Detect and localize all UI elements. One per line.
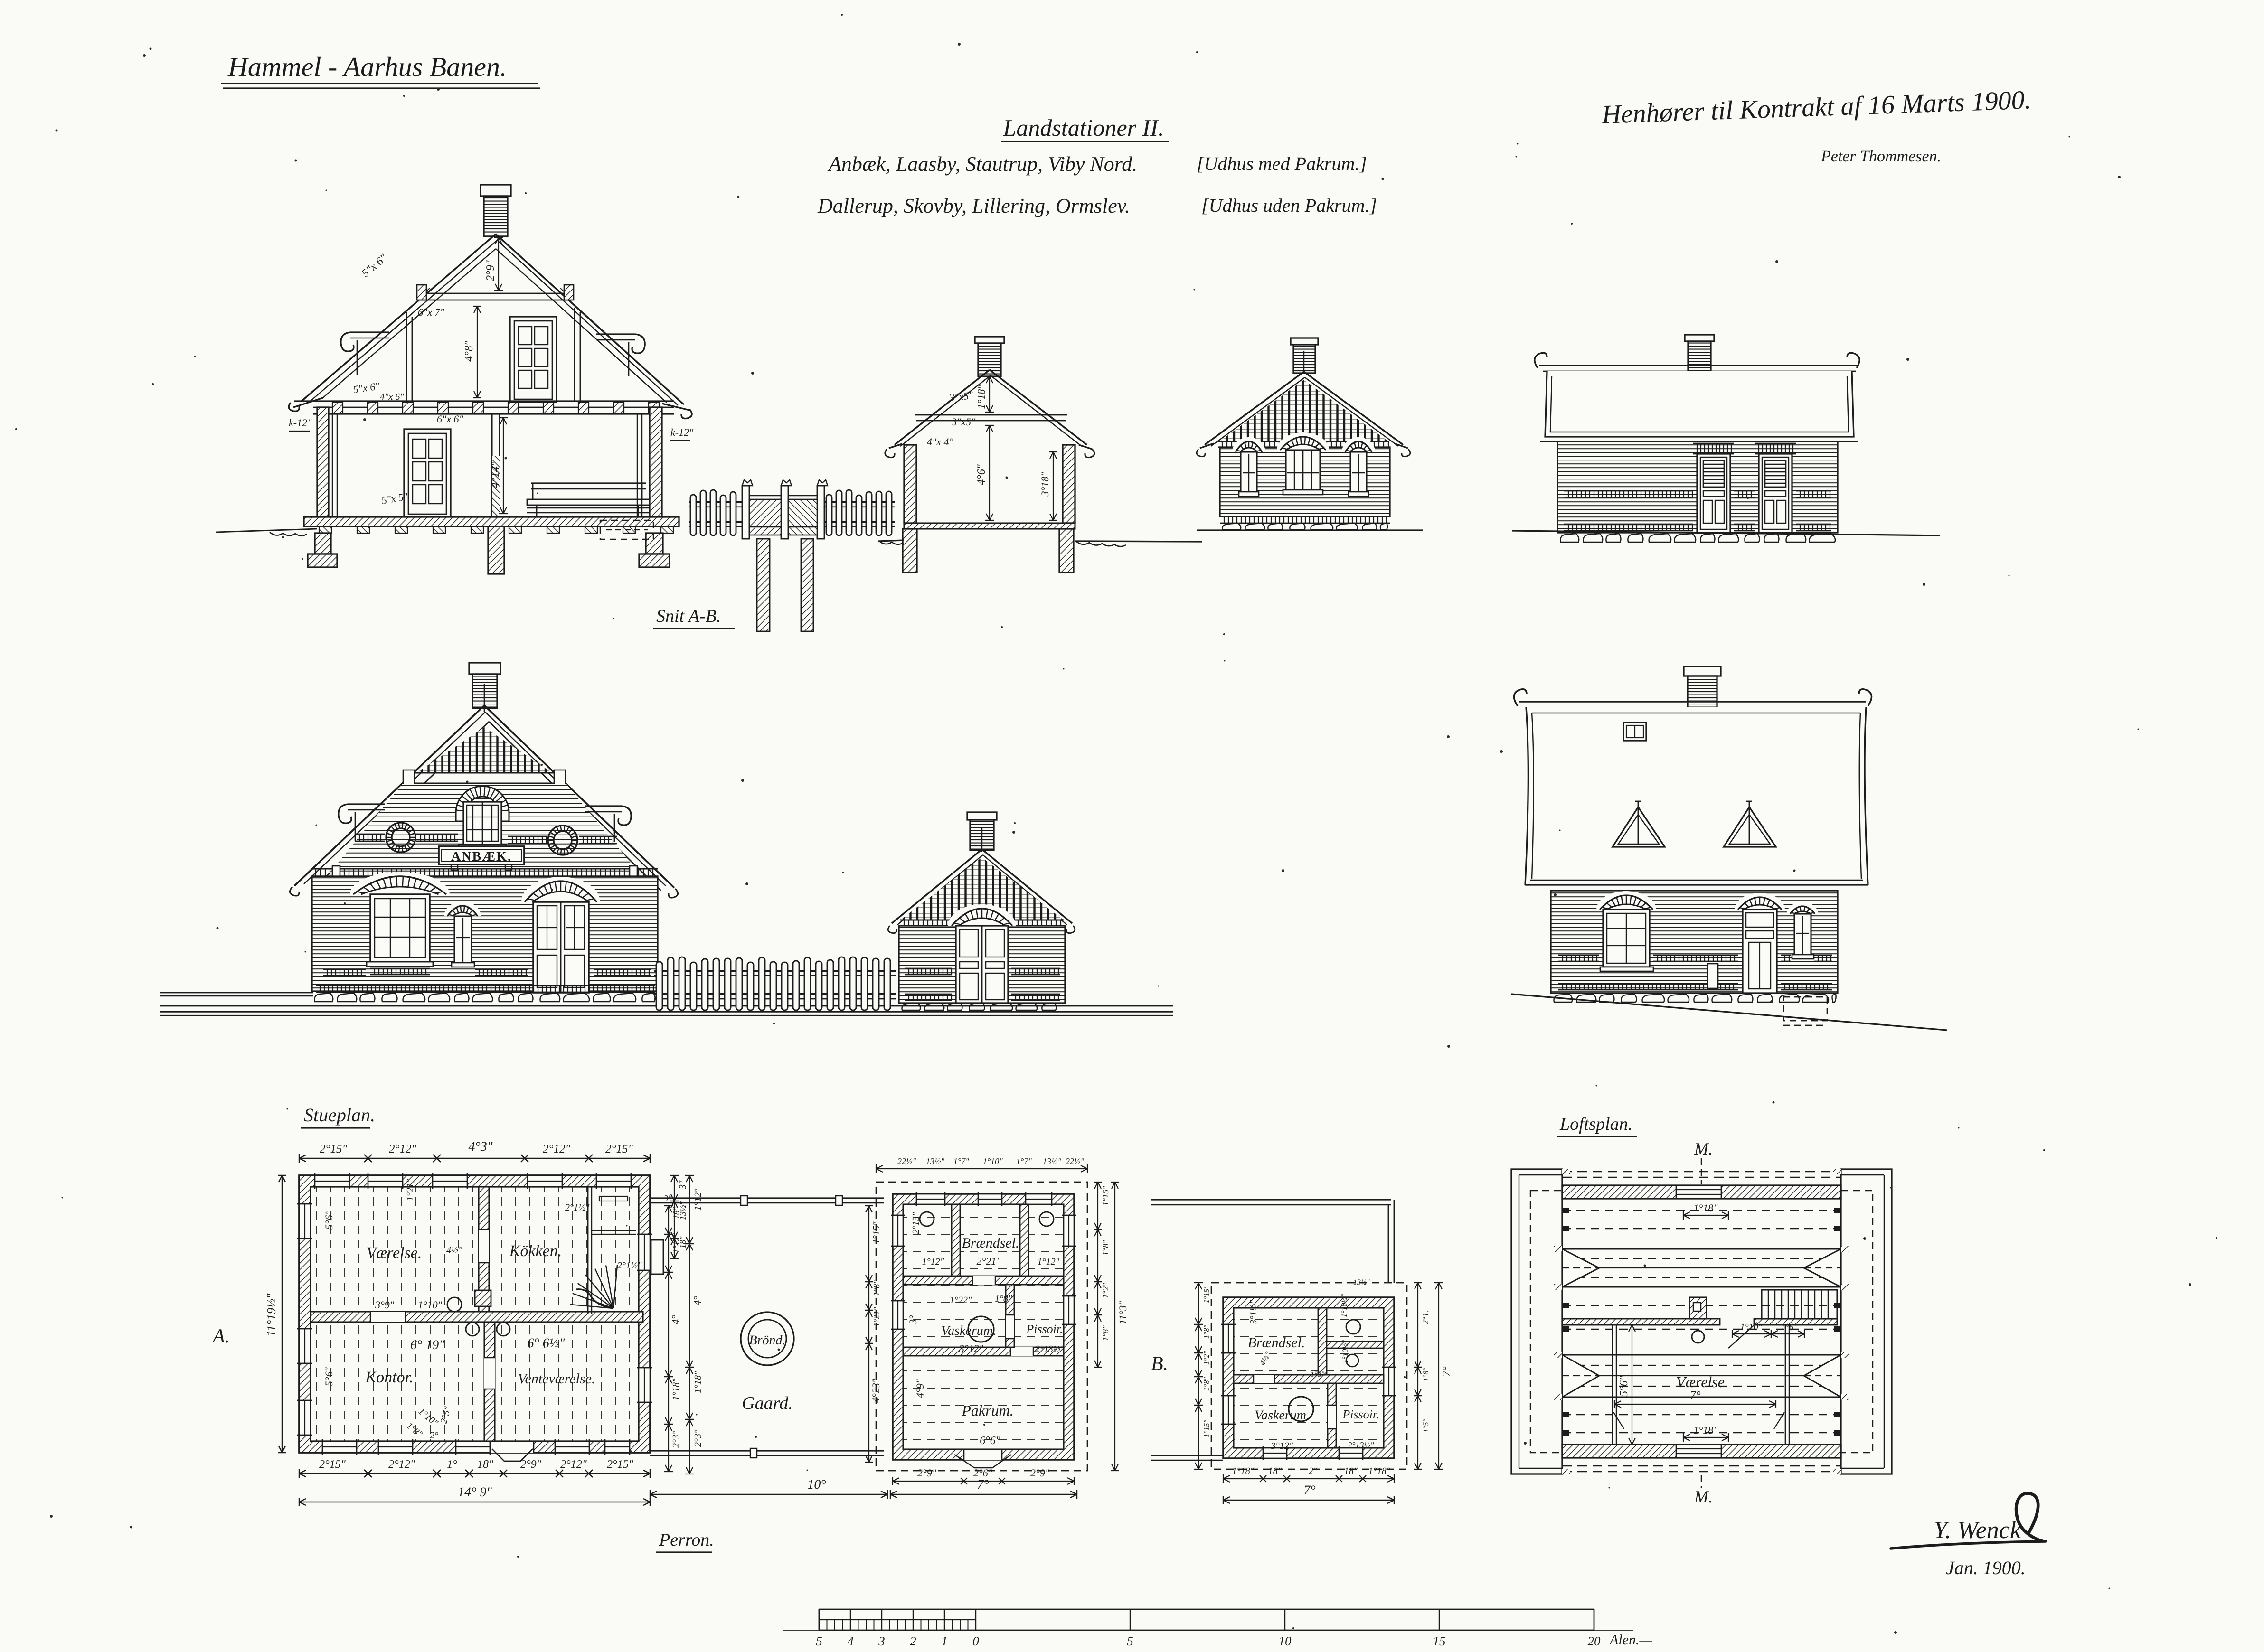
svg-text:14° 9": 14° 9" [458, 1485, 492, 1500]
svg-text:4°8": 4°8" [463, 340, 475, 362]
svg-text:[Udhus uden Pakrum.]: [Udhus uden Pakrum.] [1201, 195, 1377, 216]
svg-text:2°: 2° [430, 1430, 438, 1441]
svg-text:2°12": 2°12" [543, 1143, 570, 1155]
svg-text:1°2": 1°2" [1203, 1351, 1211, 1365]
svg-text:1°5": 1°5" [1422, 1419, 1430, 1433]
svg-text:2°9": 2°9" [917, 1467, 937, 1479]
svg-text:Brændsel.: Brændsel. [1248, 1335, 1305, 1351]
svg-text:1°6": 1°6" [1781, 1322, 1798, 1333]
svg-text:5°6": 5°6" [323, 1210, 335, 1230]
svg-text:1°: 1° [447, 1458, 457, 1471]
svg-text:7°: 7° [1689, 1389, 1700, 1402]
svg-text:1°8": 1°8" [1203, 1377, 1211, 1391]
svg-text:1°8": 1°8" [1101, 1325, 1110, 1341]
svg-text:1: 1 [941, 1634, 948, 1648]
svg-text:2°15": 2°15" [320, 1143, 347, 1155]
svg-text:M.: M. [1694, 1139, 1713, 1158]
svg-text:Værelse.: Værelse. [1676, 1373, 1728, 1390]
svg-text:1°10½": 1°10½" [1340, 1294, 1349, 1317]
svg-text:2°1½": 2°1½" [565, 1202, 590, 1213]
svg-text:7°: 7° [977, 1477, 989, 1492]
svg-text:1°22": 1°22" [950, 1295, 972, 1305]
svg-text:Værelse.: Værelse. [367, 1244, 422, 1262]
svg-text:3"x5": 3"x5" [951, 416, 976, 428]
svg-text:7°: 7° [1303, 1483, 1315, 1498]
svg-text:1°2": 1°2" [1101, 1283, 1110, 1298]
svg-text:3°9": 3°9" [375, 1299, 395, 1311]
svg-text:2°15": 2°15" [319, 1458, 346, 1471]
svg-text:4°14": 4°14" [489, 461, 501, 488]
svg-text:13½": 13½" [1043, 1156, 1062, 1166]
svg-text:4: 4 [847, 1634, 854, 1648]
svg-text:5: 5 [1127, 1634, 1133, 1648]
svg-text:2°9": 2°9" [520, 1458, 542, 1471]
svg-text:4°6": 4°6" [975, 464, 988, 485]
svg-text:1°18": 1°18" [1693, 1424, 1718, 1436]
svg-text:2°21": 2°21" [976, 1255, 1001, 1267]
svg-text:Brændsel.: Brændsel. [962, 1235, 1019, 1251]
svg-text:Alen.—: Alen.— [1609, 1632, 1652, 1648]
svg-text:Landstationer II.: Landstationer II. [1003, 114, 1164, 141]
svg-text:18": 18" [1268, 1466, 1282, 1476]
svg-text:4½": 4½" [446, 1245, 462, 1256]
svg-text:10°: 10° [807, 1477, 826, 1492]
svg-text:15: 15 [1433, 1634, 1446, 1648]
svg-text:6°6": 6°6" [980, 1435, 1001, 1447]
svg-text:1°8": 1°8" [1203, 1325, 1211, 1339]
svg-text:3°12": 3°12" [1271, 1441, 1293, 1451]
svg-text:Loftsplan.: Loftsplan. [1559, 1114, 1632, 1134]
svg-text:11°3": 11°3" [1117, 1301, 1129, 1324]
svg-text:A.: A. [211, 1325, 230, 1347]
svg-text:3°12": 3°12" [959, 1342, 984, 1354]
svg-text:3°1½": 3°1½" [1248, 1300, 1259, 1325]
svg-text:2°15": 2°15" [605, 1143, 633, 1155]
svg-text:11°19½": 11°19½" [264, 1293, 278, 1336]
svg-text:1°10": 1°10" [983, 1156, 1003, 1166]
svg-text:22½": 22½" [897, 1156, 916, 1166]
svg-text:1°15": 1°15" [1101, 1186, 1110, 1206]
svg-text:1°8": 1°8" [995, 1294, 1012, 1304]
svg-text:18": 18" [671, 1207, 681, 1219]
svg-text:k-12": k-12" [289, 417, 312, 429]
svg-text:3": 3" [663, 1193, 672, 1203]
svg-text:1°12": 1°12" [1038, 1257, 1060, 1267]
svg-text:Kökken.: Kökken. [509, 1242, 562, 1260]
svg-text:Peter Thommesen.: Peter Thommesen. [1821, 148, 1941, 165]
svg-text:Vaskerum.: Vaskerum. [1255, 1408, 1310, 1423]
svg-text:4°9": 4°9" [914, 1379, 926, 1398]
svg-text:Pakrum.: Pakrum. [961, 1402, 1013, 1419]
svg-text:1°12": 1°12" [671, 1233, 681, 1253]
svg-text:Vaskerum.: Vaskerum. [941, 1323, 996, 1338]
svg-text:1°10½": 1°10½" [1341, 1340, 1349, 1363]
svg-text:Kontor.: Kontor. [365, 1369, 413, 1386]
svg-text:13½": 13½" [1353, 1278, 1370, 1286]
svg-text:1°8": 1°8" [1422, 1368, 1430, 1381]
svg-text:1°12": 1°12" [693, 1188, 703, 1211]
svg-text:B.: B. [1151, 1353, 1168, 1375]
svg-text:2°9": 2°9" [1030, 1467, 1050, 1479]
svg-text:Snit A-B.: Snit A-B. [656, 606, 721, 626]
svg-text:18": 18" [1344, 1466, 1358, 1476]
svg-text:3°18": 3°18" [1039, 472, 1051, 497]
svg-text:6° 6½": 6° 6½" [528, 1336, 565, 1351]
svg-text:6"x 6": 6"x 6" [437, 413, 464, 425]
svg-text:1°8": 1°8" [1101, 1240, 1110, 1256]
svg-text:1°18": 1°18" [671, 1378, 681, 1400]
svg-text:Jan. 1900.: Jan. 1900. [1946, 1557, 2026, 1578]
svg-text:4°3": 4°3" [469, 1139, 493, 1154]
svg-text:6° 19": 6° 19" [410, 1338, 444, 1352]
svg-text:4°: 4° [691, 1296, 703, 1305]
svg-text:1°18": 1°18" [1693, 1202, 1718, 1214]
svg-text:2°12": 2°12" [388, 1458, 415, 1471]
svg-text:2°13½": 2°13½" [1035, 1344, 1065, 1354]
svg-text:Anbæk, Laasby, Stautrup, Viby: Anbæk, Laasby, Stautrup, Viby Nord. [827, 152, 1137, 176]
svg-text:2°15": 2°15" [607, 1458, 634, 1471]
svg-text:Dallerup, Skovby, Lillering, O: Dallerup, Skovby, Lillering, Ormslev. [817, 194, 1130, 217]
svg-text:k-12": k-12" [670, 426, 694, 438]
svg-text:[Udhus med Pakrum.]: [Udhus med Pakrum.] [1197, 153, 1367, 174]
svg-text:2°1½": 2°1½" [617, 1260, 642, 1271]
svg-text:20: 20 [1588, 1634, 1601, 1648]
svg-text:3: 3 [878, 1634, 885, 1648]
svg-text:1°21": 1°21" [405, 1179, 415, 1201]
svg-text:2: 2 [910, 1634, 916, 1648]
svg-text:1°18": 1°18" [693, 1371, 703, 1393]
svg-text:2°15": 2°15" [911, 1212, 921, 1234]
svg-text:4"x 6": 4"x 6" [380, 392, 404, 402]
svg-text:1°8": 1°8" [1311, 1370, 1324, 1379]
svg-text:2°13½": 2°13½" [1348, 1440, 1374, 1450]
svg-text:4"x 4": 4"x 4" [927, 436, 954, 448]
svg-text:Brönd.: Brönd. [749, 1333, 786, 1348]
svg-text:5°6": 5°6" [1618, 1375, 1630, 1397]
svg-text:2": 2" [1309, 1466, 1318, 1476]
svg-text:1°15": 1°15" [1203, 1420, 1211, 1437]
svg-text:1°10": 1°10" [418, 1299, 443, 1311]
svg-text:2°3": 2°3" [671, 1430, 681, 1448]
svg-text:1°18": 1°18" [975, 385, 987, 409]
svg-text:5: 5 [816, 1634, 822, 1648]
svg-text:2°3": 2°3" [693, 1429, 703, 1447]
svg-text:0: 0 [972, 1634, 979, 1648]
svg-text:Gaard.: Gaard. [742, 1393, 792, 1413]
svg-text:Pissoir.: Pissoir. [1342, 1408, 1379, 1421]
svg-text:22½": 22½" [1066, 1156, 1085, 1166]
svg-text:Pissoir.: Pissoir. [1026, 1322, 1063, 1336]
svg-text:1°18": 1°18" [1368, 1466, 1391, 1476]
svg-text:1°7": 1°7" [953, 1156, 969, 1166]
svg-text:10: 10 [1279, 1634, 1292, 1648]
svg-text:5°6": 5°6" [323, 1367, 335, 1386]
svg-text:ANBÆK.: ANBÆK. [451, 849, 512, 864]
svg-text:Hammel - Aarhus Banen.: Hammel - Aarhus Banen. [227, 51, 507, 82]
svg-text:4°: 4° [670, 1315, 681, 1324]
svg-text:1°15": 1°15" [1203, 1286, 1211, 1303]
svg-text:18": 18" [477, 1458, 494, 1471]
svg-text:3°: 3° [907, 1315, 919, 1325]
svg-text:2°12": 2°12" [560, 1458, 587, 1471]
svg-text:1°7": 1°7" [1016, 1156, 1032, 1166]
svg-text:Stueplan.: Stueplan. [304, 1104, 375, 1126]
svg-text:6"x 7": 6"x 7" [418, 306, 445, 318]
svg-text:1°10": 1°10" [1740, 1322, 1763, 1333]
svg-text:2°12": 2°12" [389, 1143, 416, 1155]
svg-text:1°18": 1°18" [1232, 1466, 1255, 1476]
svg-text:2°9": 2°9" [484, 260, 497, 281]
svg-text:7°: 7° [1441, 1366, 1453, 1377]
svg-text:M.: M. [1694, 1487, 1713, 1506]
svg-text:13½": 13½" [926, 1156, 945, 1166]
svg-text:1°12": 1°12" [922, 1257, 944, 1267]
svg-text:Venteværelse.: Venteværelse. [518, 1371, 595, 1387]
svg-text:Perron.: Perron. [659, 1530, 714, 1550]
svg-text:Y. Wenck: Y. Wenck [1934, 1517, 2021, 1544]
svg-text:2°1.: 2°1. [1421, 1310, 1430, 1324]
